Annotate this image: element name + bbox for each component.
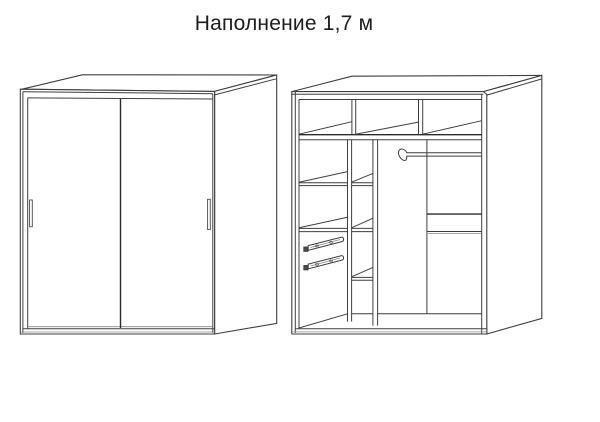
door-handle-right [208,199,211,229]
side-panel [483,75,541,334]
side-panel [215,75,277,334]
shelf-column-divider [348,140,352,322]
wardrobe-interior-view [292,75,542,334]
door-handle-left [30,200,33,227]
wardrobe-diagram [0,0,600,422]
tall-partition [373,140,378,326]
front-frame [20,89,214,334]
slide-bracket [304,247,308,252]
wardrobe-closed-view [20,75,276,334]
slide-bracket [304,265,308,270]
